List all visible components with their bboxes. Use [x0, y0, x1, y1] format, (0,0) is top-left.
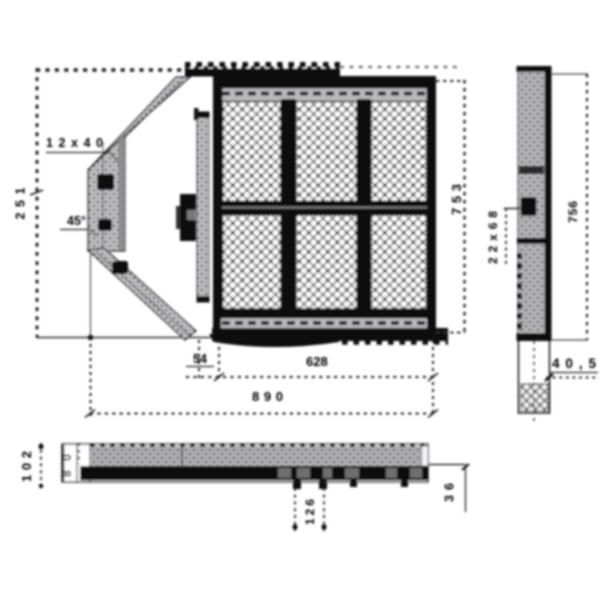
svg-text:628: 628	[306, 354, 328, 369]
svg-text:890: 890	[252, 389, 283, 404]
svg-text:54: 54	[193, 352, 207, 366]
svg-text:753: 753	[449, 184, 464, 215]
svg-text:36: 36	[443, 483, 457, 502]
svg-text:102: 102	[19, 451, 34, 482]
svg-text:251: 251	[14, 187, 28, 219]
svg-text:40,5: 40,5	[552, 356, 596, 371]
svg-text:45°: 45°	[67, 214, 86, 228]
svg-text:756: 756	[566, 201, 580, 223]
svg-text:12x40: 12x40	[46, 136, 103, 150]
svg-text:126: 126	[303, 499, 317, 525]
svg-text:22x68: 22x68	[486, 211, 500, 264]
